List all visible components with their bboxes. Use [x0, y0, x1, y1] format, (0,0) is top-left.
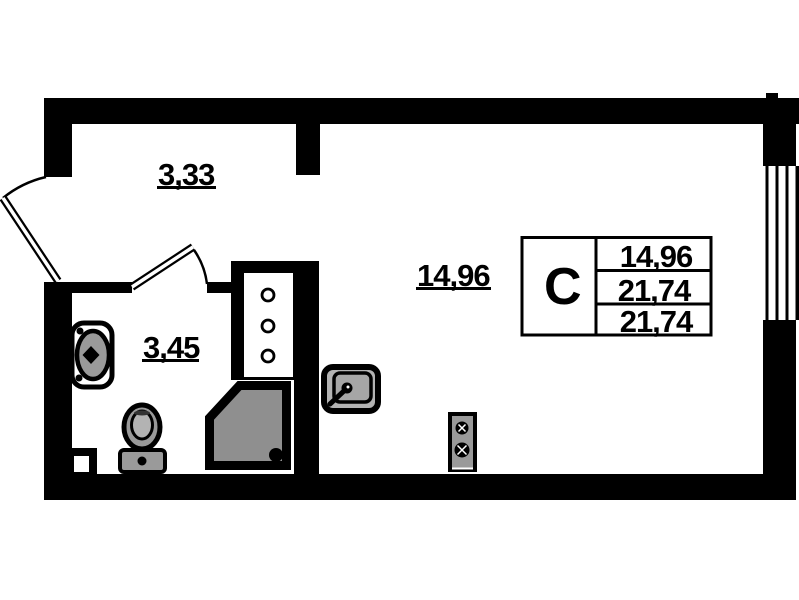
svg-text:21,74: 21,74	[620, 304, 694, 339]
svg-text:C: C	[544, 258, 582, 316]
svg-text:21,74: 21,74	[618, 273, 692, 308]
svg-text:14,96: 14,96	[620, 239, 693, 274]
